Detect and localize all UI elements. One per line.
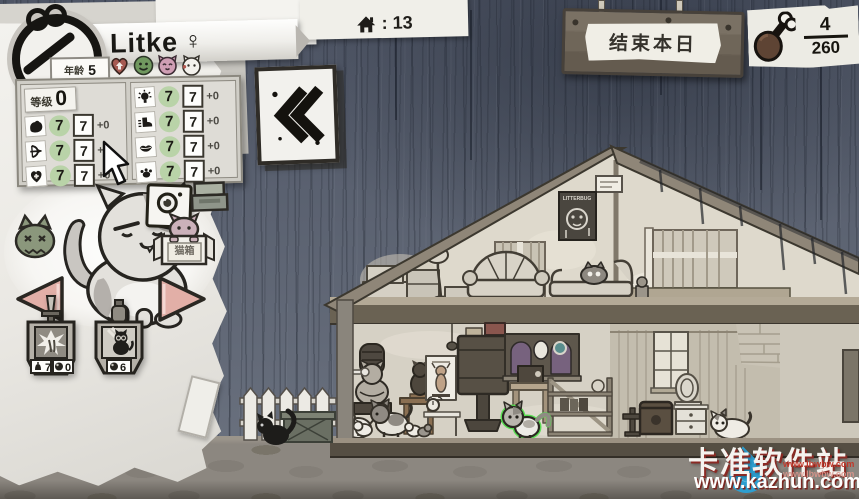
stat-row-strength[interactable]: 7 7 +0 xyxy=(25,112,123,139)
attic-window-right xyxy=(645,228,737,290)
right-window xyxy=(843,350,859,422)
age-value: 5 xyxy=(88,61,96,77)
stat-base: 7 xyxy=(49,115,70,136)
heart-icon xyxy=(25,165,47,187)
stat-value: 7 xyxy=(183,110,204,133)
stats-column-left: 等级 0 7 7 +0 7 7 +0 xyxy=(20,82,128,182)
svg-text:0: 0 xyxy=(65,362,71,374)
sword-icon xyxy=(42,296,60,323)
orb-icon xyxy=(110,363,118,371)
cat-heart-icon[interactable] xyxy=(180,54,203,77)
food-fraction: 4 260 xyxy=(795,15,855,58)
food-numerator: 4 xyxy=(795,15,855,35)
stat-mod: +0 xyxy=(97,119,110,131)
stat-mod: +0 xyxy=(207,115,220,127)
catbox-label: 猫箱 xyxy=(168,242,201,257)
stat-value: 7 xyxy=(182,85,203,108)
stat-mod: +0 xyxy=(206,90,219,102)
front-yard xyxy=(240,388,336,445)
stat-base: 7 xyxy=(158,86,179,107)
end-day-button[interactable]: 结束本日 xyxy=(561,8,744,78)
stat-base: 7 xyxy=(159,136,180,157)
muscle-icon xyxy=(24,115,46,137)
chest xyxy=(640,402,672,434)
house-count-card: : 13 xyxy=(300,0,469,40)
catbox-button[interactable]: 猫箱 xyxy=(150,212,218,268)
hanging-cat-poster xyxy=(426,356,456,400)
dresser xyxy=(674,405,708,434)
attic-floor xyxy=(330,297,859,325)
svg-text:6: 6 xyxy=(120,362,126,374)
stats-panel: 等级 0 7 7 +0 7 7 +0 xyxy=(15,75,243,187)
ability-tag-claw[interactable]: 7 0 xyxy=(20,294,82,390)
bulb-icon xyxy=(134,86,156,108)
stat-row-agility[interactable]: 7 7 +0 xyxy=(25,137,123,164)
stat-value: 7 xyxy=(73,114,94,137)
house-count: : 13 xyxy=(381,12,412,34)
game-screen: LITTERBUG xyxy=(0,0,859,499)
stat-row-speed[interactable]: 7 7 +0 xyxy=(135,108,233,135)
litterbug-poster: LITTERBUG xyxy=(559,192,596,240)
ability-tag-potion[interactable]: 6 xyxy=(90,298,148,388)
small-wall-frame xyxy=(596,176,622,192)
double-chevron-left-icon xyxy=(264,78,330,152)
stat-mod: +0 xyxy=(207,140,220,152)
heart-up-icon[interactable] xyxy=(108,54,131,77)
gender-icon: ♀ xyxy=(184,27,203,55)
zombie-cat-icon xyxy=(12,212,58,262)
printer-icon xyxy=(189,179,230,214)
age-label: 年龄 xyxy=(64,62,84,77)
next-cat-arrow[interactable] xyxy=(156,276,210,322)
stat-value: 7 xyxy=(73,139,94,162)
orb-icon xyxy=(55,363,63,371)
svg-text:LITTERBUG: LITTERBUG xyxy=(563,196,592,202)
watermark-url: www.kazhun.com xyxy=(694,471,859,494)
stat-base: 7 xyxy=(49,140,70,161)
lips-icon xyxy=(135,136,157,158)
foot-icon xyxy=(134,111,156,133)
watermark-mirror-url: www.lbwbw.com xyxy=(783,459,854,469)
level-label: 等级 xyxy=(30,93,53,110)
food-denominator: 260 xyxy=(796,38,856,58)
bow-icon xyxy=(25,140,47,162)
collapse-panel-button[interactable] xyxy=(254,65,339,166)
end-day-label: 结束本日 xyxy=(609,28,698,57)
storage-button[interactable] xyxy=(189,179,230,214)
stat-row-intelligence[interactable]: 7 7 +0 xyxy=(134,83,232,110)
level-value: 0 xyxy=(55,88,68,111)
stats-column-right: 7 7 +0 7 7 +0 7 7 +0 xyxy=(130,80,238,180)
stat-value: 7 xyxy=(183,135,204,158)
stat-mod: +0 xyxy=(97,144,110,156)
bottle-icon xyxy=(112,300,126,322)
end-day-paper: 结束本日 xyxy=(585,21,722,64)
svg-text:7: 7 xyxy=(45,362,51,374)
drumstick-icon xyxy=(751,11,797,65)
stat-base: 7 xyxy=(159,111,180,132)
stat-mod: +0 xyxy=(208,165,221,177)
badge-ring xyxy=(44,4,67,27)
mood-icons xyxy=(108,54,203,77)
house-icon xyxy=(355,14,377,34)
graveyard-button[interactable] xyxy=(12,212,58,262)
stat-row-charm[interactable]: 7 7 +0 xyxy=(135,133,233,160)
smiley-icon[interactable] xyxy=(132,54,155,77)
cat-statue xyxy=(636,277,648,299)
food-counter: 4 260 xyxy=(747,4,859,70)
cat-in-box-icon xyxy=(150,212,218,268)
level-chip: 等级 0 xyxy=(24,86,77,112)
cat-happy-icon[interactable] xyxy=(156,54,179,77)
